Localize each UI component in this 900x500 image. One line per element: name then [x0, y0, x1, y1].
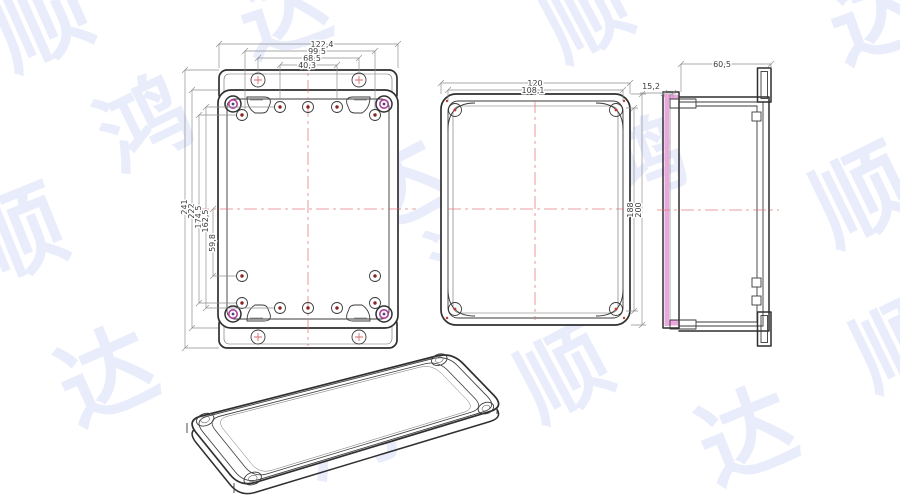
dim-label: 15,2 [642, 82, 660, 91]
dim-label: 59,8 [208, 234, 217, 252]
dim-section-depth: 60,5 [678, 60, 774, 92]
technical-drawing: 122,4 99,5 68,5 40,3 241 222 174,5 [0, 0, 900, 500]
dim-label: 60,5 [713, 60, 731, 69]
lid-view: 120 108,1 188 200 [438, 79, 646, 328]
dim-label: 200 [634, 202, 643, 217]
rib-hooks [752, 112, 761, 305]
dim-label: 108,1 [522, 86, 545, 95]
section-view: 60,5 15,2 [640, 60, 779, 346]
front-view: 122,4 99,5 68,5 40,3 241 222 174,5 [180, 40, 416, 351]
tray-top-face [192, 355, 499, 484]
isometric-view [187, 352, 499, 494]
dim-label: 162,5 [201, 210, 210, 233]
dim-label: 40,3 [298, 61, 316, 70]
dim-lid-height-overall: 200 [631, 91, 646, 328]
lid-outline [441, 94, 630, 325]
